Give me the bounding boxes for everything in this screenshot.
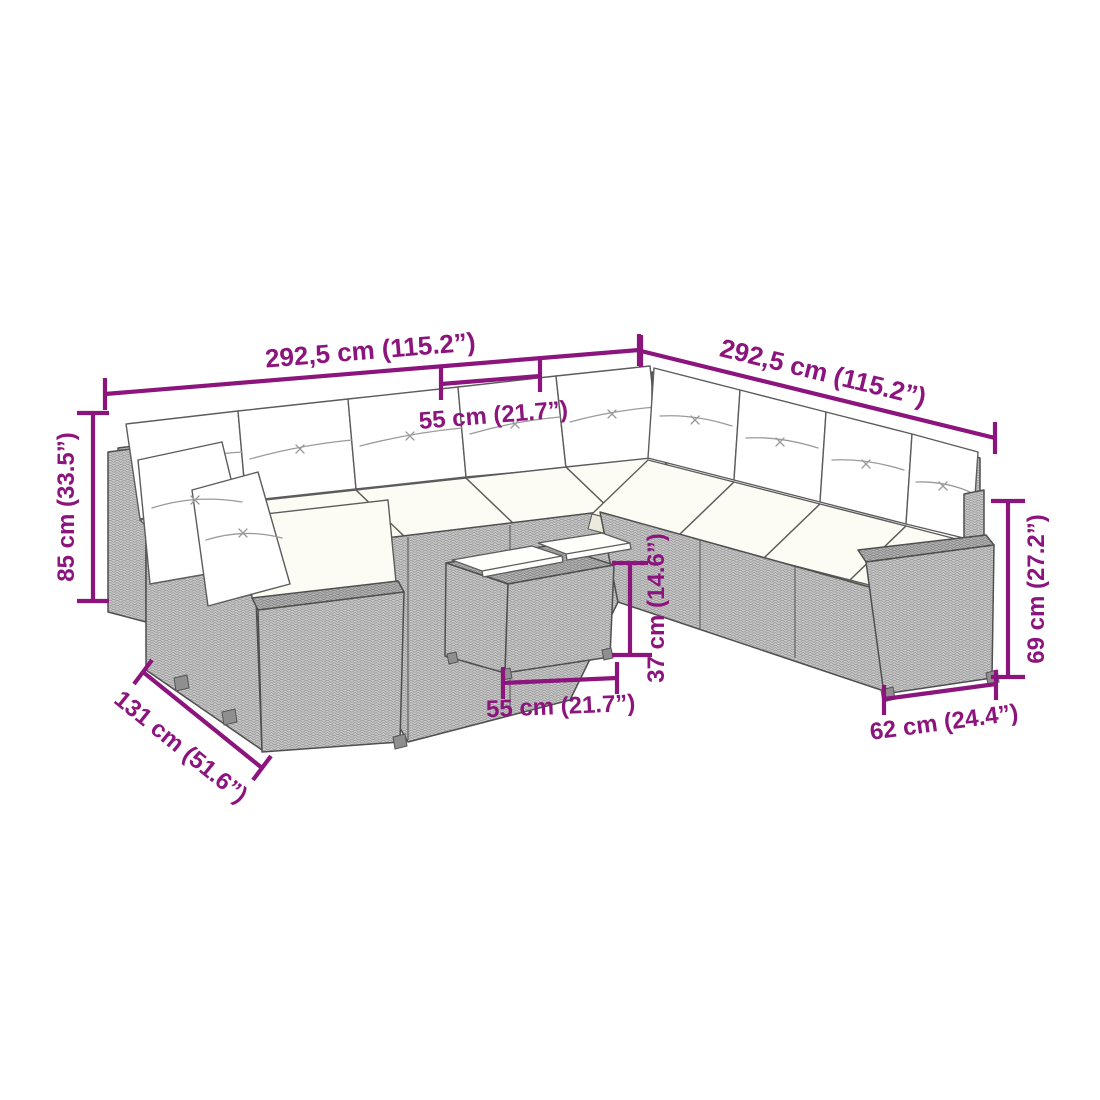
table-right-face xyxy=(505,565,614,673)
dim-line xyxy=(991,501,1025,677)
dim-arm-height-label: 69 cm (27.2”) xyxy=(1023,514,1050,663)
dim-table-height-label: 37 cm (14.6”) xyxy=(643,533,670,682)
back-pillow xyxy=(348,387,466,489)
diagram-svg: 292,5 cm (115.2”) 292,5 cm (115.2”) 55 c… xyxy=(0,0,1100,1100)
chaise-armrest-front xyxy=(258,592,404,752)
dim-table-width-label: 55 cm (21.7”) xyxy=(485,690,635,723)
dimension-diagram: 292,5 cm (115.2”) 292,5 cm (115.2”) 55 c… xyxy=(0,0,1100,1100)
right-armrest-front xyxy=(866,545,994,694)
back-pillow xyxy=(556,366,660,468)
dim-line xyxy=(77,413,109,601)
dim-back-height-label: 85 cm (33.5”) xyxy=(53,432,80,581)
dim-arm-depth-label: 62 cm (24.4”) xyxy=(868,699,1020,746)
dim-back-height: 85 cm (33.5”) xyxy=(53,413,109,601)
dim-arm-height: 69 cm (27.2”) xyxy=(991,501,1050,677)
